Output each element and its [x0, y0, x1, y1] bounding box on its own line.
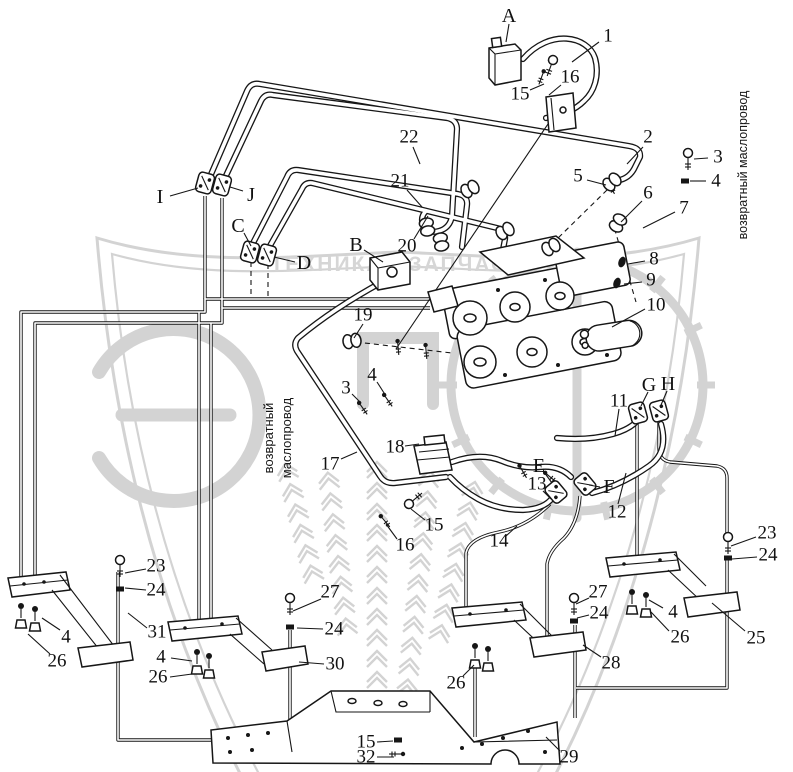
eyebolt-icon — [543, 54, 559, 77]
callout-18: 18 — [386, 437, 405, 458]
callout-3: 3 — [713, 147, 723, 168]
leader-line — [170, 188, 198, 196]
pipe-bracket-top — [546, 93, 576, 132]
eyebolt-icon — [286, 594, 295, 616]
callout-27: 27 — [589, 582, 608, 603]
callout-10: 10 — [647, 295, 666, 316]
callout-25: 25 — [747, 628, 766, 649]
oil-canister — [489, 37, 521, 85]
callout-9: 9 — [646, 270, 656, 291]
screw-icon — [537, 68, 547, 85]
callout-D: D — [297, 252, 311, 274]
leader-line — [643, 212, 675, 228]
pipe-clamp-icon — [601, 171, 624, 193]
bolt-washer-icon — [483, 646, 494, 671]
callout-4: 4 — [367, 365, 377, 386]
pipe-clamp-icon — [342, 333, 362, 350]
callout-13: 13 — [528, 474, 547, 495]
callout-4: 4 — [711, 171, 721, 192]
eyebolt-icon — [570, 594, 579, 616]
nut-icon — [116, 587, 124, 592]
leader-line — [549, 85, 561, 95]
leader-line — [731, 537, 756, 546]
callout-1: 1 — [603, 26, 613, 47]
callout-8: 8 — [649, 249, 659, 270]
callout-26: 26 — [149, 667, 168, 688]
eyebolt-icon — [403, 490, 425, 511]
pipe-clamp-icon — [494, 220, 517, 241]
callout-26: 26 — [447, 673, 466, 694]
bolt-washer-icon — [30, 606, 41, 631]
callout-11: 11 — [610, 391, 628, 412]
callout-4: 4 — [156, 647, 166, 668]
nut-icon — [681, 179, 689, 184]
bolt-washer-icon — [16, 603, 27, 628]
bracket-28 — [452, 602, 586, 657]
nut-icon — [286, 625, 294, 630]
callout-I: I — [157, 186, 164, 208]
callout-23: 23 — [147, 556, 166, 577]
callout-27: 27 — [321, 582, 340, 603]
leader-line — [530, 84, 544, 90]
leader-line — [377, 382, 386, 396]
leader-line — [694, 158, 708, 159]
bracket-29-base — [211, 691, 560, 764]
eyebolt-icon — [724, 533, 733, 555]
callout-J: J — [247, 184, 255, 206]
callout-4: 4 — [61, 627, 71, 648]
leader-line — [341, 452, 357, 459]
callout-32: 32 — [357, 747, 376, 768]
callout-19: 19 — [354, 305, 373, 326]
callout-16: 16 — [396, 535, 415, 556]
callout-4: 4 — [668, 602, 678, 623]
leader-line — [649, 600, 663, 608]
callout-20: 20 — [398, 236, 417, 257]
callout-16: 16 — [561, 67, 580, 88]
return-line-label-left-1: возвратный — [261, 403, 276, 474]
callout-15: 15 — [511, 84, 530, 105]
bolt-washer-icon — [192, 649, 203, 674]
nut-icon — [394, 738, 402, 743]
leader-line — [651, 612, 669, 631]
pipe-clamp-icon — [433, 232, 450, 252]
callout-7: 7 — [679, 198, 689, 219]
leader-line — [293, 599, 321, 611]
callout-29: 29 — [560, 747, 579, 768]
leader-line — [125, 569, 146, 573]
return-line-label-right: возвратный маслопровод — [736, 90, 750, 239]
callout-17: 17 — [321, 454, 340, 475]
bolt-washer-icon — [470, 643, 481, 668]
leader-line — [125, 588, 146, 590]
leader-line — [128, 613, 147, 628]
callout-15: 15 — [425, 515, 444, 536]
screw-icon — [381, 392, 394, 408]
leader-line — [732, 557, 757, 559]
callout-24: 24 — [325, 619, 345, 640]
leader-line — [297, 628, 323, 629]
callout-23: 23 — [758, 523, 777, 544]
watermark-word-left: ТЕХНИКА — [270, 253, 383, 276]
return-line-label-left-2: маслопровод — [279, 397, 294, 478]
callout-22: 22 — [400, 127, 419, 148]
callout-C: C — [231, 215, 244, 237]
callouts: A1151622212345678910IJCDB2019341718E13FG… — [28, 5, 778, 768]
leader-line — [230, 187, 243, 191]
callout-3: 3 — [341, 378, 351, 399]
callout-24: 24 — [590, 603, 610, 624]
callout-26: 26 — [671, 627, 690, 648]
bolt-washer-icon — [641, 592, 652, 617]
callout-24: 24 — [759, 545, 779, 566]
nut-icon — [724, 556, 732, 561]
callout-G: G — [642, 374, 656, 396]
leader-line — [577, 615, 589, 618]
callout-6: 6 — [643, 183, 653, 204]
hose-connector-g-icon — [628, 401, 649, 424]
leader-line — [621, 201, 642, 222]
callout-12: 12 — [608, 502, 627, 523]
callout-2: 2 — [643, 127, 653, 148]
hose-connector-h-icon — [649, 399, 670, 422]
callout-28: 28 — [602, 653, 621, 674]
callout-H: H — [661, 373, 675, 395]
nut-icon — [570, 619, 578, 624]
pipe-clamp-icon — [607, 212, 628, 235]
callout-26: 26 — [48, 651, 67, 672]
leader-line — [413, 147, 420, 164]
callout-24: 24 — [147, 580, 167, 601]
parts-diagram: ТЕХНИКА ЗАПЧАСТИ — [0, 0, 793, 772]
pipe-bracket-18 — [414, 435, 452, 474]
callout-F: F — [603, 476, 614, 498]
callout-A: A — [502, 5, 517, 27]
leader-line — [170, 674, 192, 677]
bracket-31 — [8, 572, 133, 667]
callout-B: B — [349, 234, 362, 256]
callout-5: 5 — [573, 166, 583, 187]
eyebolt-icon — [684, 149, 693, 171]
callout-14: 14 — [490, 531, 510, 552]
callout-30: 30 — [326, 654, 345, 675]
callout-31: 31 — [148, 622, 167, 643]
leader-line — [42, 618, 60, 630]
callout-21: 21 — [391, 171, 410, 192]
